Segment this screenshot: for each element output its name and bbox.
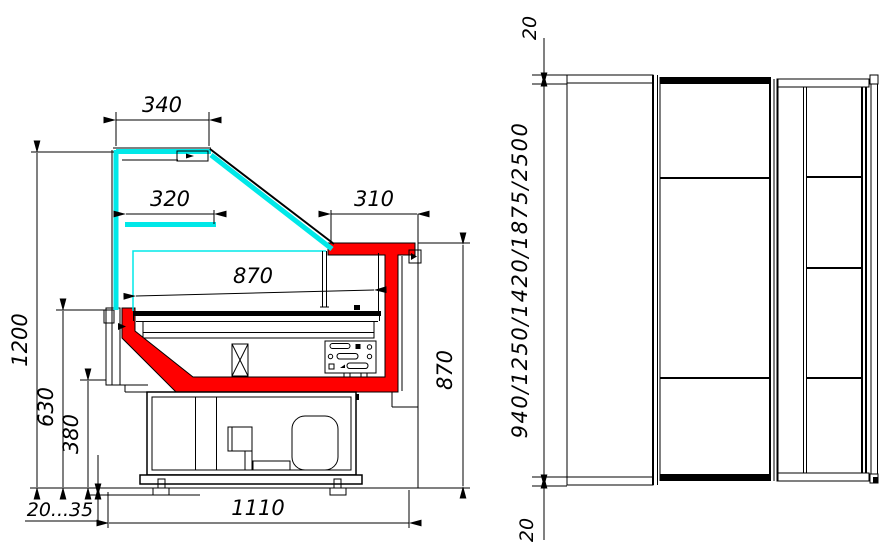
deck-support-brace <box>232 344 248 376</box>
dim-side-panel-top: 20 <box>519 16 541 40</box>
dim-canopy-depth: 340 <box>142 93 182 117</box>
fan-grille <box>325 341 376 377</box>
technical-drawing: 340 320 310 870 1200 630 380 <box>0 0 894 559</box>
plan-deck-section <box>660 77 770 481</box>
dim-shelf-depth: 320 <box>150 187 190 211</box>
dim-total-height: 1200 <box>8 313 32 366</box>
deck-subframe <box>136 322 378 339</box>
drawing-canvas: 340 320 310 870 1200 630 380 <box>0 0 894 559</box>
glass-shelf <box>125 222 216 227</box>
rear-glass-divider <box>320 251 329 307</box>
glass-canopy <box>113 148 211 160</box>
machine-compartment <box>140 392 362 484</box>
dim-base-height: 380 <box>59 414 83 454</box>
front-glass <box>112 150 119 310</box>
dim-side-panel-bottom: 20 <box>516 518 538 542</box>
dim-front-panel-height: 630 <box>34 387 58 427</box>
base-plate <box>140 475 362 484</box>
deck-clamp-mark <box>354 305 360 310</box>
side-section-view: 340 320 310 870 1200 630 380 <box>8 93 470 528</box>
air-duct-line <box>133 251 326 311</box>
plan-right-edge <box>870 75 878 483</box>
plan-front-glass-section <box>567 75 658 485</box>
dim-worktop-height: 870 <box>433 350 457 390</box>
dim-feet-adjust: 20...35 <box>27 499 93 521</box>
plan-rear-section <box>774 79 869 481</box>
dim-length-options: 940/1250/1420/1875/2500 <box>508 122 532 439</box>
sloped-front-glass <box>210 149 334 249</box>
dim-worktop-depth: 310 <box>354 187 394 211</box>
plan-view: 20 940/1250/1420/1875/2500 20 <box>508 16 878 542</box>
dimensions-plan-view: 20 940/1250/1420/1875/2500 20 <box>508 16 567 542</box>
dim-base-depth: 1110 <box>231 496 284 520</box>
dim-deck-width: 870 <box>233 264 273 288</box>
